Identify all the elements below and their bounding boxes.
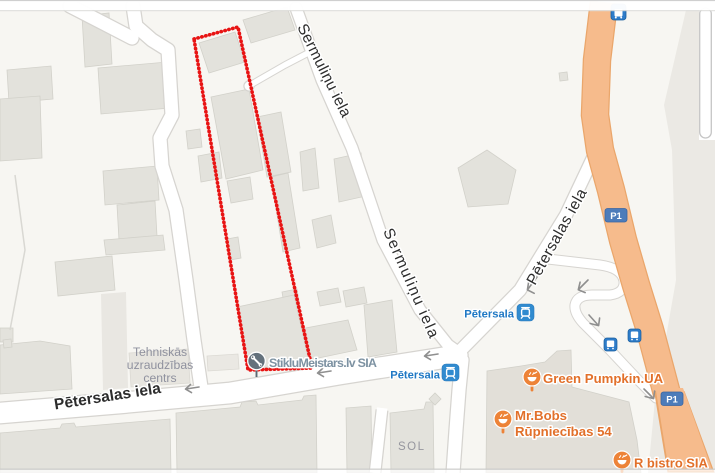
svg-text:P1: P1 xyxy=(610,211,622,222)
svg-text:Tehniskās: Tehniskās xyxy=(133,345,187,359)
svg-text:Green Pumpkin.UA: Green Pumpkin.UA xyxy=(543,371,664,386)
svg-text:Pētersala: Pētersala xyxy=(390,370,441,382)
svg-text:SOL: SOL xyxy=(398,441,426,453)
svg-text:StikluMeistars.lv SIA: StikluMeistars.lv SIA xyxy=(269,356,377,370)
svg-text:R bistro SIA: R bistro SIA xyxy=(634,456,708,471)
svg-text:centrs: centrs xyxy=(143,371,176,385)
svg-text:Rūpniecības 54: Rūpniecības 54 xyxy=(515,424,612,439)
svg-text:Pētersala: Pētersala xyxy=(464,309,515,321)
svg-text:uzraudzības: uzraudzības xyxy=(127,358,193,372)
svg-text:Mr.Bobs: Mr.Bobs xyxy=(515,408,567,423)
svg-text:P1: P1 xyxy=(666,395,678,406)
